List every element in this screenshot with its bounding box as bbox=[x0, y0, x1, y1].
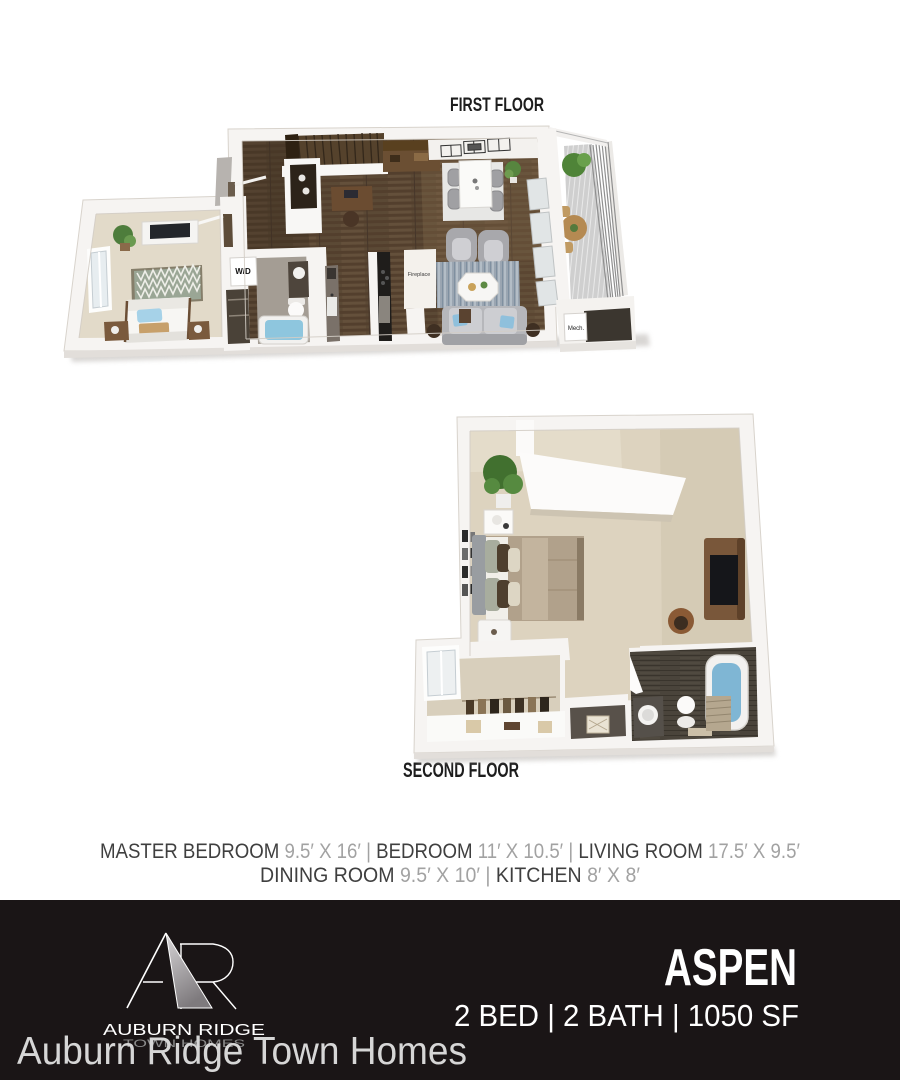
svg-text:DINING ROOM 9.5′ X 10′ | KIT: DINING ROOM 9.5′ X 10′ | KITCHEN 8′ X 8′ bbox=[260, 864, 640, 887]
svg-text:MASTER BEDROOM 9.5′ X 16′ |: MASTER BEDROOM 9.5′ X 16′ | BEDROOM 11′ … bbox=[100, 840, 800, 863]
svg-text:Auburn Ridge Town Homes: Auburn Ridge Town Homes bbox=[17, 1030, 467, 1073]
svg-text:FIRST FLOOR: FIRST FLOOR bbox=[450, 95, 544, 116]
svg-text:ASPEN: ASPEN bbox=[664, 939, 797, 997]
svg-text:Fireplace: Fireplace bbox=[408, 272, 431, 278]
svg-text:2 BED | 2 BATH | 1050 SF: 2 BED | 2 BATH | 1050 SF bbox=[454, 998, 799, 1033]
svg-text:Mech.: Mech. bbox=[568, 326, 585, 332]
svg-text:W/D: W/D bbox=[235, 267, 251, 276]
